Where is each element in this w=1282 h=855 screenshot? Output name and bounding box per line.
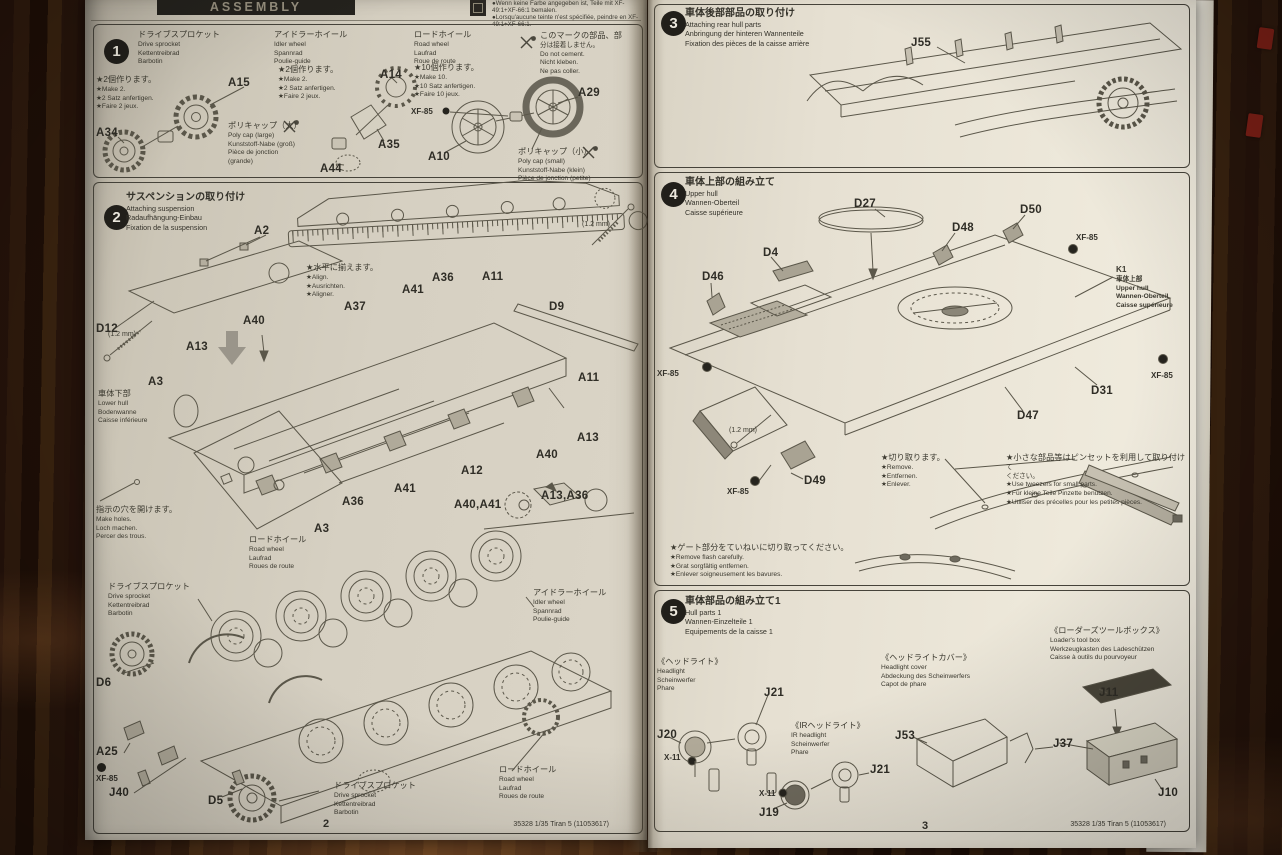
road-wheel-callout: ロードホイール Road wheel Laufrad Roues de rout… xyxy=(249,535,339,572)
page-number-right: 3 xyxy=(922,820,928,832)
step5-title: 車体部品の組み立て1 Hull parts 1 Wannen-Einzeltei… xyxy=(685,595,865,636)
paint-label-xf85: XF-85 xyxy=(96,774,118,783)
part-label-a36: A36 xyxy=(432,272,454,284)
ir-headlight-label: 《IRヘッドライト》 IR headlight Scheinwerfer Pha… xyxy=(791,721,881,758)
idler-wheel-make-note: ★2個作ります。 ★Make 2. ★2 Satz anfertigen. ★F… xyxy=(278,65,378,102)
part-label-j19: J19 xyxy=(759,807,779,819)
step4-panel: 4 車体上部の組み立て Upper hull Wannen-Oberteil C… xyxy=(654,172,1190,586)
drill-size-note: (1.2 mm) xyxy=(729,427,757,434)
part-label-a3: A3 xyxy=(314,523,329,535)
part-label-j20: J20 xyxy=(657,729,677,741)
part-label-d47: D47 xyxy=(1017,410,1039,422)
part-label-j21: J21 xyxy=(764,687,784,699)
drill-size-note: (1.2 mm) xyxy=(582,221,610,228)
part-label-a29: A29 xyxy=(578,87,600,99)
part-label-a34: A34 xyxy=(96,127,118,139)
road-wheel-label: ロードホイール Road wheel Laufrad Roue de route xyxy=(414,30,514,67)
part-label-d27: D27 xyxy=(854,198,876,210)
part-label-a13: A13 xyxy=(577,432,599,444)
paint-label-xf85: XF-85 xyxy=(727,487,749,496)
part-label-a40-a41: A40,A41 xyxy=(454,499,502,511)
paint-label-xf85: XF-85 xyxy=(411,107,433,116)
assembly-header: ASSEMBLY xyxy=(157,0,355,15)
part-label-j11: J11 xyxy=(1099,687,1118,699)
part-label-a41: A41 xyxy=(402,284,424,296)
paint-label-x11: X-11 xyxy=(759,789,775,798)
part-label-a3: A3 xyxy=(148,376,163,388)
paint-label-xf85: XF-85 xyxy=(1076,233,1098,242)
page-number-left: 2 xyxy=(323,818,329,830)
red-edge-tab xyxy=(1245,113,1263,138)
part-label-a2: A2 xyxy=(254,225,269,237)
part-label-a37: A37 xyxy=(344,301,366,313)
step4-number: 4 xyxy=(661,182,686,207)
paint-dot xyxy=(97,763,106,772)
poly-cap-small-label: ポリキャップ（小） Poly cap (small) Kunststoff-Na… xyxy=(518,147,638,184)
page-left: ASSEMBLY ●Wenn keine Farbe angegeben ist… xyxy=(85,0,647,840)
drive-sprocket-make-note: ★2個作ります。 ★Make 2. ★2 Satz anfertigen. ★F… xyxy=(96,75,188,112)
part-label-d48: D48 xyxy=(952,222,974,234)
step5-number: 5 xyxy=(661,599,686,624)
part-label-d12: D12 xyxy=(96,323,118,335)
part-label-a25: A25 xyxy=(96,746,118,758)
part-label-d6: D6 xyxy=(96,677,111,689)
step5-panel: 5 車体部品の組み立て1 Hull parts 1 Wannen-Einzelt… xyxy=(654,590,1190,832)
headlight-cover-label: 《ヘッドライトカバー》 Headlight cover Abdeckung de… xyxy=(881,653,1031,690)
step2-panel: 2 サスペンションの取り付け Attaching suspension Rada… xyxy=(93,182,643,834)
part-label-a13: A13 xyxy=(186,341,208,353)
part-label-d50: D50 xyxy=(1020,204,1042,216)
part-label-d4: D4 xyxy=(763,247,778,259)
road-wheel-make-note: ★10個作ります。 ★Make 10. ★10 Satz anfertigen.… xyxy=(414,63,514,100)
step3-panel: 3 車体後部部品の取り付け Attaching rear hull parts … xyxy=(654,4,1190,168)
part-label-a10: A10 xyxy=(428,151,450,163)
make-holes-note: 指示の穴を開けます。 Make holes. Loch machen. Perc… xyxy=(96,505,186,542)
paint-label-xf85: XF-85 xyxy=(1151,371,1173,380)
part-label-j21: J21 xyxy=(870,764,890,776)
lower-hull-label: 車体下部 Lower hull Bodenwanne Caisse inféri… xyxy=(98,389,188,426)
align-note: ★水平に揃えます。 ★Align. ★Ausrichten. ★Aligner. xyxy=(306,263,396,300)
tweezers-note: ★小さな部品等はピンセットを利用して取り付けて ください。 ★Use tweez… xyxy=(1006,453,1186,507)
step1-panel: 1 ドライブスプロケット Drive sprocket Kettentreibr… xyxy=(93,24,643,178)
kit-code-right: 35328 1/35 Tiran 5 (11053617) xyxy=(1070,821,1166,828)
part-label-a12: A12 xyxy=(461,465,483,477)
paint-label-xf85: XF-85 xyxy=(657,369,679,378)
road-wheel-callout: ロードホイール Road wheel Laufrad Roues de rout… xyxy=(499,765,589,802)
part-label-d46: D46 xyxy=(702,271,724,283)
step3-title: 車体後部部品の取り付け Attaching rear hull parts An… xyxy=(685,7,905,48)
remove-note: ★切り取ります。 ★Remove. ★Entfernen. ★Enlever. xyxy=(881,453,971,490)
page-right: 3 車体後部部品の取り付け Attaching rear hull parts … xyxy=(648,0,1196,848)
idler-wheel-callout: アイドラーホイール Idler wheel Spannrad Poulie-gu… xyxy=(533,588,633,625)
part-label-j53: J53 xyxy=(895,730,915,742)
part-label-d31: D31 xyxy=(1091,385,1113,397)
part-label-j40: J40 xyxy=(109,787,129,799)
part-label-j37: J37 xyxy=(1053,738,1073,750)
part-label-a14: A14 xyxy=(380,69,402,81)
part-label-d5: D5 xyxy=(208,795,223,807)
part-label-a11: A11 xyxy=(578,372,599,384)
red-edge-tab xyxy=(1257,27,1275,50)
part-label-d9: D9 xyxy=(549,301,564,313)
part-label-d49: D49 xyxy=(804,475,826,487)
paint-label-x11: X-11 xyxy=(664,753,680,762)
part-label-a44: A44 xyxy=(320,163,342,175)
step1-number: 1 xyxy=(104,39,129,64)
headlight-label: 《ヘッドライト》 Headlight Scheinwerfer Phare xyxy=(657,657,747,694)
step4-title: 車体上部の組み立て Upper hull Wannen-Oberteil Cai… xyxy=(685,176,845,217)
drive-sprocket-label: ドライブスプロケット Drive sprocket Kettentreibrad… xyxy=(138,30,258,67)
part-label-a11: A11 xyxy=(482,271,503,283)
idler-wheel-label: アイドラーホイール Idler wheel Spannrad Poulie-gu… xyxy=(274,30,384,67)
part-label-a36: A36 xyxy=(342,496,364,508)
k1-upper-hull-label: K1 車体上部 Upper hull Wannen-Oberteil Caiss… xyxy=(1116,265,1188,311)
poly-cap-large-label: ポリキャップ（大） Poly cap (large) Kunststoff-Na… xyxy=(228,121,328,167)
drive-sprocket-callout: ドライブスプロケット Drive sprocket Kettentreibrad… xyxy=(334,781,434,818)
part-label-a40: A40 xyxy=(243,315,265,327)
part-label-a15: A15 xyxy=(228,77,250,89)
loaders-tool-box-label: 《ローダーズツールボックス》 Loader's tool box Werkzeu… xyxy=(1050,626,1190,663)
remove-flash-note: ★ゲート部分をていねいに切り取ってください。 ★Remove flash car… xyxy=(670,543,860,580)
photographed-instruction-manual: { "colors":{"paper_left":"#d3cdbf","pape… xyxy=(0,0,1282,855)
paint-brush-icon xyxy=(470,0,486,16)
part-label-a35: A35 xyxy=(378,139,400,151)
part-label-a13-a36: A13,A36 xyxy=(541,490,589,502)
step4-illustration xyxy=(655,173,1189,585)
kit-code-left: 35328 1/35 Tiran 5 (11053617) xyxy=(513,821,609,828)
part-label-j55: J55 xyxy=(911,37,931,49)
part-label-a40: A40 xyxy=(536,449,558,461)
part-label-a41: A41 xyxy=(394,483,416,495)
step3-number: 3 xyxy=(661,11,686,36)
do-not-cement-note: このマークの部品、部 分は接着しません。 Do not cement. Nich… xyxy=(540,31,640,77)
drive-sprocket-callout: ドライブスプロケット Drive sprocket Kettentreibrad… xyxy=(108,582,208,619)
part-label-j10: J10 xyxy=(1158,787,1178,799)
